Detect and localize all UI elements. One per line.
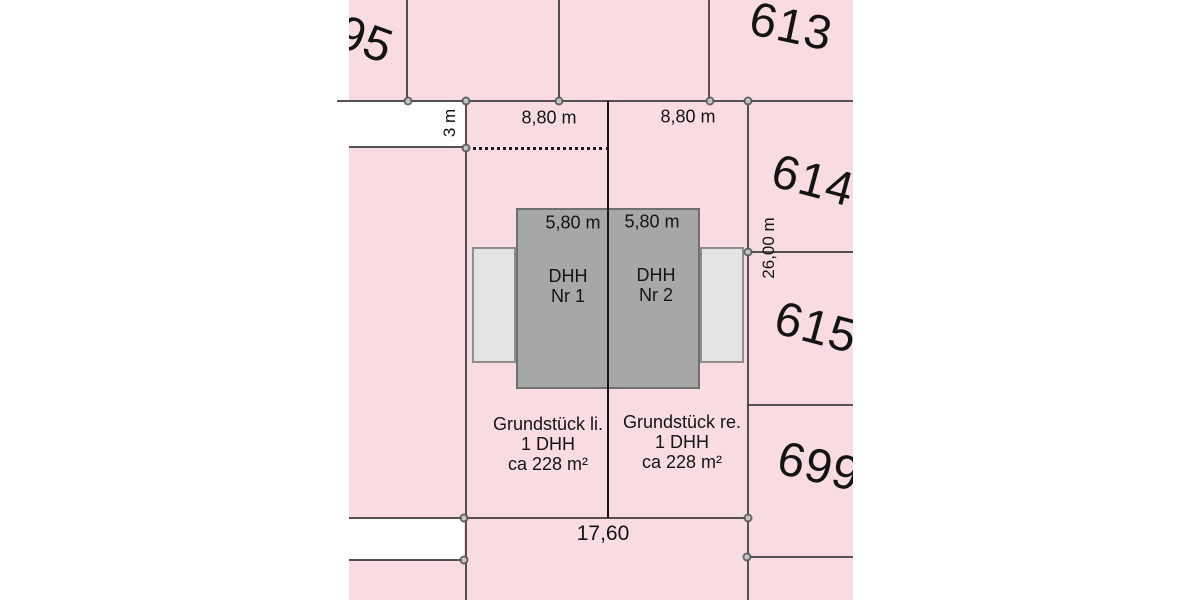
dimension-side-depth: 26,00 m [759,217,779,278]
garage-right [700,247,744,363]
plot-split-line [607,101,609,518]
survey-point [460,556,469,565]
survey-point [743,553,752,562]
survey-point [460,514,469,523]
boundary-line-613-left [708,0,710,102]
boundary-line-615-699 [747,404,853,406]
dimension-bottom-width: 17,60 [577,522,630,546]
house-label-dhh-2: DHH Nr 2 [637,265,676,305]
plot-label-right: Grundstück re. 1 DHH ca 228 m² [623,412,741,472]
survey-point [706,97,715,106]
house-label-dhh-1: DHH Nr 1 [549,266,588,306]
plot-label-left: Grundstück li. 1 DHH ca 228 m² [493,414,603,474]
site-plan: 95 613 614 615 699 8,80 m 8,80 m 3 m 26,… [0,0,1200,600]
survey-point [462,97,471,106]
boundary-line-top-mid [558,0,560,102]
parcel-number-95: 95 [349,5,400,76]
boundary-line-roadgap-bottom [349,146,466,148]
survey-point [404,97,413,106]
dimension-house-width-left: 5,80 m [545,213,600,234]
setback-dotted-line [466,147,609,150]
boundary-line-plot-right [747,100,749,600]
parcel-number-613: 613 [745,0,838,63]
road-gap-bottom-left [349,519,464,559]
survey-point [555,97,564,106]
survey-point [462,144,471,153]
parcel-number-614: 614 [766,144,853,219]
boundary-line-699-bottom [747,556,853,558]
survey-point [744,514,753,523]
parcel-number-615: 615 [769,291,853,366]
dimension-top-width-left: 8,80 m [521,108,576,129]
boundary-line-plot-left [465,100,467,600]
boundary-line-plot-bottom [349,517,749,519]
dimension-top-width-right: 8,80 m [660,107,715,128]
cadastral-map: 95 613 614 615 699 8,80 m 8,80 m 3 m 26,… [349,0,853,600]
survey-point [744,97,753,106]
dimension-house-width-right: 5,80 m [624,212,679,233]
boundary-line-95-parcel [406,0,408,102]
boundary-line-roadgap2-bottom [349,559,465,561]
survey-point [744,248,753,257]
parcel-number-699: 699 [772,431,853,503]
boundary-line-top [349,100,853,102]
dimension-offset-depth: 3 m [440,109,460,137]
garage-left [472,247,516,363]
